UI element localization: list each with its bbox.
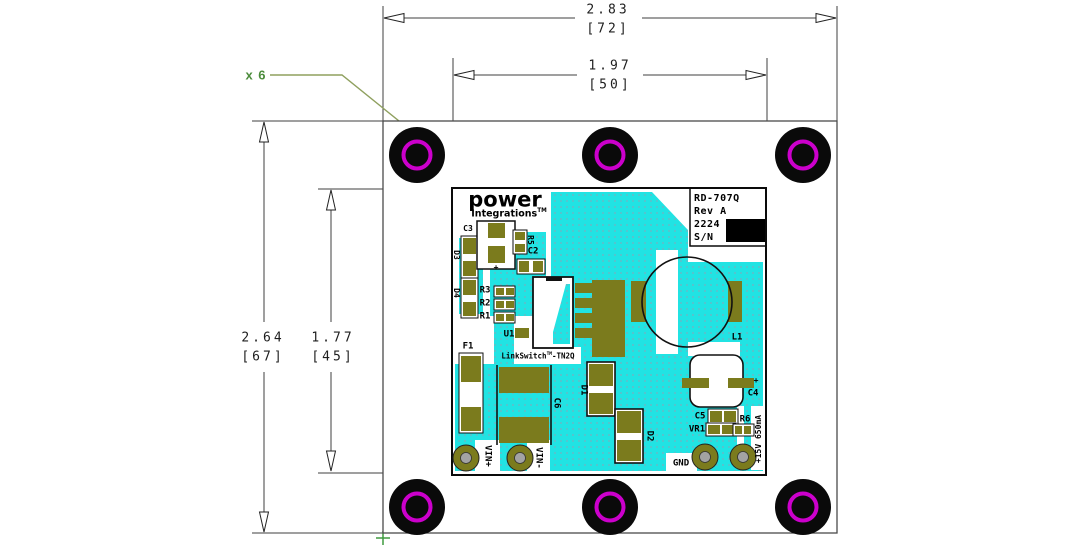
chip-name: LinkSwitch — [501, 351, 546, 360]
dim-module-height-inches: 1.77 — [310, 331, 355, 346]
refdes-r2: R2 — [480, 300, 491, 309]
serial-number-box — [726, 219, 765, 242]
dim-overall-height-mm: [67] — [240, 350, 285, 365]
c3-polarity-mark: + — [494, 264, 499, 272]
mounting-hole — [389, 127, 445, 183]
component-d4 — [461, 278, 478, 318]
component-d2 — [615, 409, 643, 463]
title-serial: S/N — [694, 231, 714, 244]
switch-node-pad — [592, 280, 625, 357]
terminal-label-output: +15V 650mA — [755, 415, 763, 463]
mounting-hole — [582, 127, 638, 183]
refdes-c2: C2 — [528, 248, 539, 257]
hole-count-callout: x 6 — [244, 68, 267, 83]
component-vr1 — [706, 423, 736, 436]
pcb-assembly-drawing: 2.83 [72] 1.97 [50] 2.64 [67] 1.77 [45] … — [0, 0, 1080, 550]
refdes-r6: R6 — [740, 416, 751, 425]
refdes-d1: D1 — [579, 385, 588, 396]
component-r2 — [494, 299, 515, 310]
refdes-c3: C3 — [463, 225, 473, 233]
mounting-hole — [775, 127, 831, 183]
terminal-gnd-pad — [692, 444, 718, 470]
component-c3 — [477, 221, 515, 269]
component-c5 — [708, 409, 738, 424]
dim-overall-width-inches: 2.83 — [585, 3, 630, 18]
refdes-vr1: VR1 — [689, 426, 705, 435]
terminal-label-vin-plus: VIN+ — [483, 445, 492, 467]
component-r3 — [494, 286, 515, 297]
refdes-r3: R3 — [480, 287, 491, 296]
dim-overall-width-mm: [72] — [585, 22, 630, 37]
power-integrations-logo-sub: IntegrationsTM — [471, 209, 546, 219]
chip-part-number: LinkSwitchTM-TN2Q — [501, 352, 574, 360]
dim-module-height-mm: [45] — [310, 350, 355, 365]
refdes-u1: U1 — [504, 331, 515, 340]
component-r6 — [733, 424, 754, 436]
title-date-code: 2224 — [694, 218, 720, 231]
terminal-output-pad — [730, 444, 756, 470]
mounting-hole — [582, 479, 638, 535]
terminal-label-gnd: GND — [673, 460, 689, 469]
refdes-d4: D4 — [452, 288, 460, 298]
chip-suffix: -TN2Q — [552, 351, 575, 360]
refdes-c5: C5 — [695, 413, 706, 422]
dim-module-width-mm: [50] — [587, 78, 632, 93]
component-d3 — [461, 236, 478, 278]
logo-sub-text: Integrations — [471, 208, 537, 219]
refdes-f1: F1 — [463, 343, 474, 352]
mounting-hole — [775, 479, 831, 535]
mounting-hole — [389, 479, 445, 535]
title-model: RD-707Q — [694, 192, 740, 205]
refdes-l1: L1 — [732, 334, 743, 343]
refdes-r5: R5 — [526, 235, 534, 245]
refdes-d2: D2 — [645, 431, 654, 442]
refdes-c6: C6 — [552, 398, 561, 409]
terminal-vin-plus-pad — [453, 445, 479, 471]
component-f1 — [459, 353, 483, 433]
dim-overall-height-inches: 2.64 — [240, 331, 285, 346]
component-r5 — [513, 230, 527, 254]
component-r1 — [494, 312, 515, 323]
terminal-vin-minus-pad — [507, 445, 533, 471]
component-d1 — [587, 362, 615, 416]
c4-polarity-mark: + — [754, 377, 759, 385]
refdes-c4: C4 — [748, 390, 759, 399]
component-c2 — [517, 259, 545, 274]
refdes-r1: R1 — [480, 313, 491, 322]
logo-tm: TM — [537, 208, 547, 214]
refdes-d3: D3 — [452, 250, 460, 260]
title-rev: Rev A — [694, 205, 727, 218]
component-c4 — [682, 355, 754, 407]
terminal-label-vin-minus: VIN- — [534, 447, 543, 469]
dim-module-width-inches: 1.97 — [587, 59, 632, 74]
